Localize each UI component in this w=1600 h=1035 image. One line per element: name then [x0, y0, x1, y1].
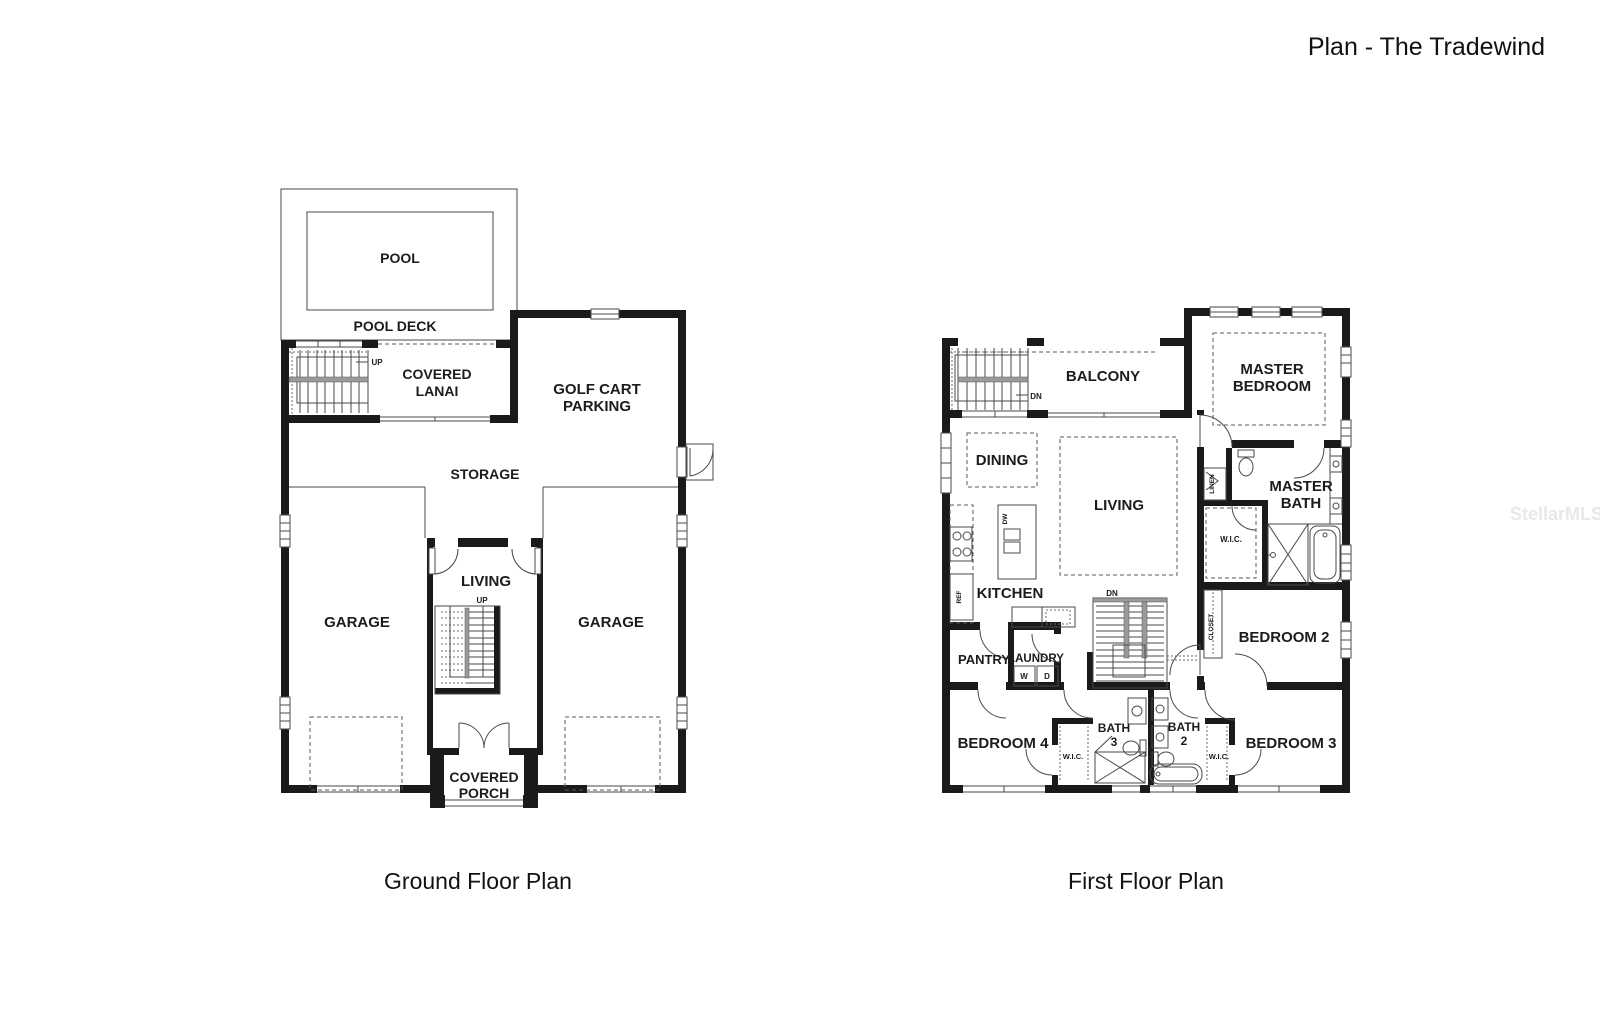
room-label-covered-lanai-1: COVERED: [402, 366, 471, 382]
bath3-fixtures: [1095, 698, 1146, 783]
room-label-covered-porch-1: COVERED: [449, 769, 518, 785]
floor-plan-page: Plan - The Tradewind StellarMLS: [0, 0, 1600, 1035]
first-floor-plan: DN BALCONY MASTER BEDROOM DINING LIVING …: [941, 307, 1351, 894]
room-label-garage-right: GARAGE: [578, 614, 644, 631]
room-label-bedroom3: BEDROOM 3: [1246, 735, 1337, 752]
storage-partitions: [289, 487, 678, 538]
linen-label: LINEN: [1209, 474, 1216, 494]
room-label-kitchen: KITCHEN: [977, 585, 1044, 602]
room-label-master-bedroom-2: BEDROOM: [1233, 378, 1311, 395]
stairs-up-label: UP: [371, 358, 383, 367]
central-stairs-ground: [435, 606, 500, 694]
room-label-covered-lanai-2: LANAI: [416, 383, 459, 399]
ground-floor-plan: POOL POOL DECK UP COVERED LANAI GOLF CAR…: [280, 189, 713, 894]
room-label-garage-left: GARAGE: [324, 614, 390, 631]
room-label-bedroom2: BEDROOM 2: [1239, 629, 1330, 646]
ref-label: REF: [956, 590, 963, 603]
wic-bedroom3-label: W.I.C.: [1209, 752, 1229, 761]
exterior-door: [677, 444, 713, 480]
dw-label: DW: [1002, 513, 1009, 525]
room-label-dining: DINING: [976, 452, 1029, 469]
room-label-balcony: BALCONY: [1066, 368, 1140, 385]
bath2-label-1: BATH: [1168, 720, 1200, 734]
room-label-living-ground: LIVING: [461, 573, 511, 590]
room-label-storage: STORAGE: [451, 466, 520, 482]
room-label-covered-porch-2: PORCH: [459, 785, 510, 801]
bath2-label-2: 2: [1181, 734, 1188, 748]
room-label-pool-deck: POOL DECK: [354, 318, 437, 334]
garage-left-bay: [310, 717, 402, 790]
stairs-dn-center-label: DN: [1106, 589, 1118, 598]
first-floor-caption: First Floor Plan: [1068, 868, 1224, 894]
page-title: Plan - The Tradewind: [1308, 33, 1545, 61]
room-label-pantry: PANTRY: [958, 652, 1010, 667]
room-label-master-bath-1: MASTER: [1269, 478, 1333, 495]
room-label-laundry: LAUNDRY: [1008, 653, 1064, 665]
room-label-pool: POOL: [380, 250, 420, 266]
bath2-fixtures: [1150, 698, 1202, 784]
room-label-golf-cart-1: GOLF CART: [553, 381, 641, 398]
stairs-up-center-label: UP: [476, 596, 488, 605]
watermark: StellarMLS: [1510, 504, 1600, 524]
bath3-label-1: BATH: [1098, 721, 1130, 735]
room-label-living-first: LIVING: [1094, 497, 1144, 514]
balcony-stairs: [950, 348, 1028, 412]
ground-floor-caption: Ground Floor Plan: [384, 868, 572, 894]
room-label-golf-cart-2: PARKING: [563, 398, 631, 415]
exterior-stairs: [289, 348, 368, 415]
room-label-bedroom4: BEDROOM 4: [958, 735, 1050, 752]
washer-label: W: [1020, 672, 1028, 681]
garage-right-bay: [565, 717, 660, 790]
dryer-label: D: [1044, 672, 1050, 681]
wic-master-label: W.I.C.: [1220, 535, 1242, 544]
stairs-dn-label: DN: [1030, 392, 1042, 401]
living-doors: [429, 548, 541, 574]
wic-bedroom4-label: W.I.C.: [1063, 752, 1083, 761]
central-stairs-first: [1093, 598, 1167, 688]
room-label-master-bath-2: BATH: [1281, 495, 1322, 512]
floor-plan-image: Plan - The Tradewind StellarMLS: [0, 0, 1600, 1035]
room-label-master-bedroom-1: MASTER: [1240, 361, 1304, 378]
closet-label: CLOSET: [1208, 614, 1215, 640]
kitchen-fixtures: [950, 505, 1075, 627]
bath3-label-2: 3: [1111, 735, 1118, 749]
